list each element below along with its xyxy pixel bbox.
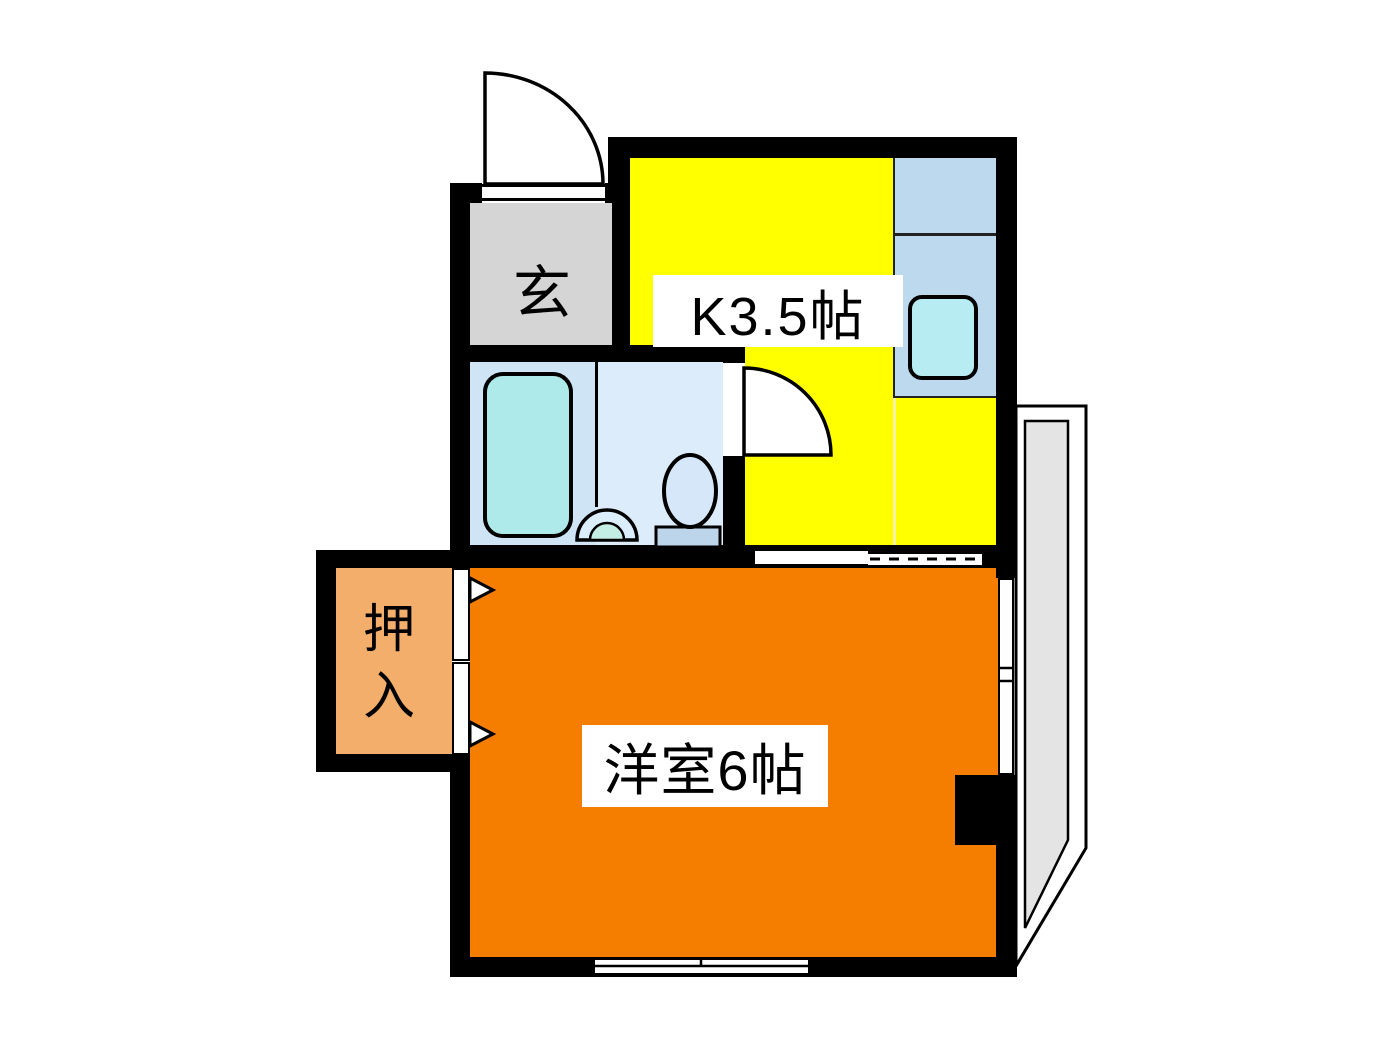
bathroom-floor-toilet-side	[596, 362, 723, 545]
bathroom-door-opening	[723, 363, 745, 456]
western-room-label-text: 洋室6帖	[603, 726, 806, 807]
kitchen-counter-divider	[893, 233, 998, 236]
kitchen-label-text: K3.5帖	[690, 272, 865, 351]
kitchen-pass-opening-dashed	[868, 554, 982, 565]
bathroom-divider-line	[595, 362, 598, 507]
balcony-floor	[1025, 421, 1068, 928]
bathtub	[483, 372, 573, 538]
wall-right-upper	[996, 137, 1017, 578]
genkan-label: 玄	[505, 253, 579, 323]
closet-label-char-2: 入	[363, 664, 415, 731]
closet-label: 押 入	[356, 594, 422, 734]
wall-left-lower	[450, 754, 470, 977]
kitchen-counter-edge-line	[893, 398, 896, 545]
entrance-door-swing	[485, 73, 603, 184]
window-right	[998, 578, 1014, 775]
genkan-label-text: 玄	[513, 246, 571, 330]
kitchen-pass-opening-solid	[755, 551, 868, 564]
wall-right-pillar	[955, 775, 1017, 845]
wall-closet-left	[316, 550, 336, 772]
wall-closet-top	[316, 550, 470, 568]
balcony-outer-rail	[1016, 406, 1086, 966]
closet-sliding-door-lower	[452, 662, 470, 755]
entrance-door-sill	[482, 184, 605, 201]
window-bottom	[593, 958, 810, 975]
closet-sliding-door-upper	[452, 568, 470, 661]
kitchen-sink	[908, 295, 978, 380]
kitchen-label: K3.5帖	[653, 275, 903, 347]
wall-genkan-kitchen	[612, 183, 630, 362]
floorplan-canvas: 玄 K3.5帖 洋室6帖 押 入	[0, 0, 1400, 1050]
wall-left-upper	[450, 183, 470, 555]
wall-closet-bottom	[316, 754, 470, 772]
closet-label-char-1: 押	[363, 597, 415, 664]
western-room-label: 洋室6帖	[582, 725, 828, 807]
wall-top-kitchen	[608, 137, 1017, 158]
